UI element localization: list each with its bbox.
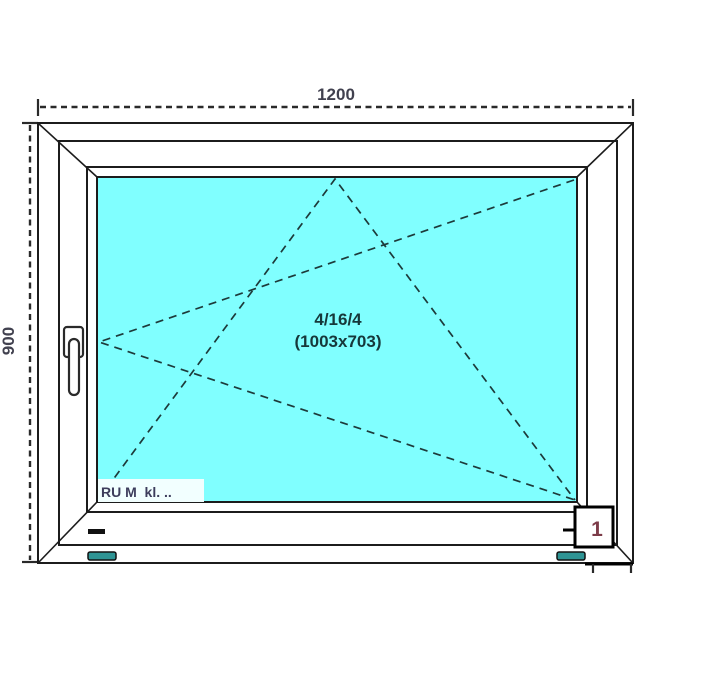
drawing-canvas: 1200 900 4/16/4 (1003x703)	[0, 0, 720, 690]
glazing-spec-text: 4/16/4	[314, 310, 362, 329]
profile-label-text: RU M kl. ..	[101, 484, 172, 500]
hinge-mark	[88, 529, 105, 534]
handle-lever	[69, 339, 79, 395]
dimension-height-label: 900	[0, 327, 18, 355]
window-technical-drawing: 1200 900 4/16/4 (1003x703)	[0, 0, 720, 690]
detail-marker-label: 1	[591, 518, 603, 541]
bottom-right-bracket	[585, 564, 633, 573]
drain-slot-right	[557, 552, 585, 560]
dimension-width-label: 1200	[317, 85, 355, 104]
dimension-height: 900	[0, 123, 38, 562]
profile-label: RU M kl. ..	[98, 479, 204, 502]
drain-slot-left	[88, 552, 116, 560]
dimension-width: 1200	[38, 85, 633, 116]
glazing-size-text: (1003x703)	[295, 332, 382, 351]
